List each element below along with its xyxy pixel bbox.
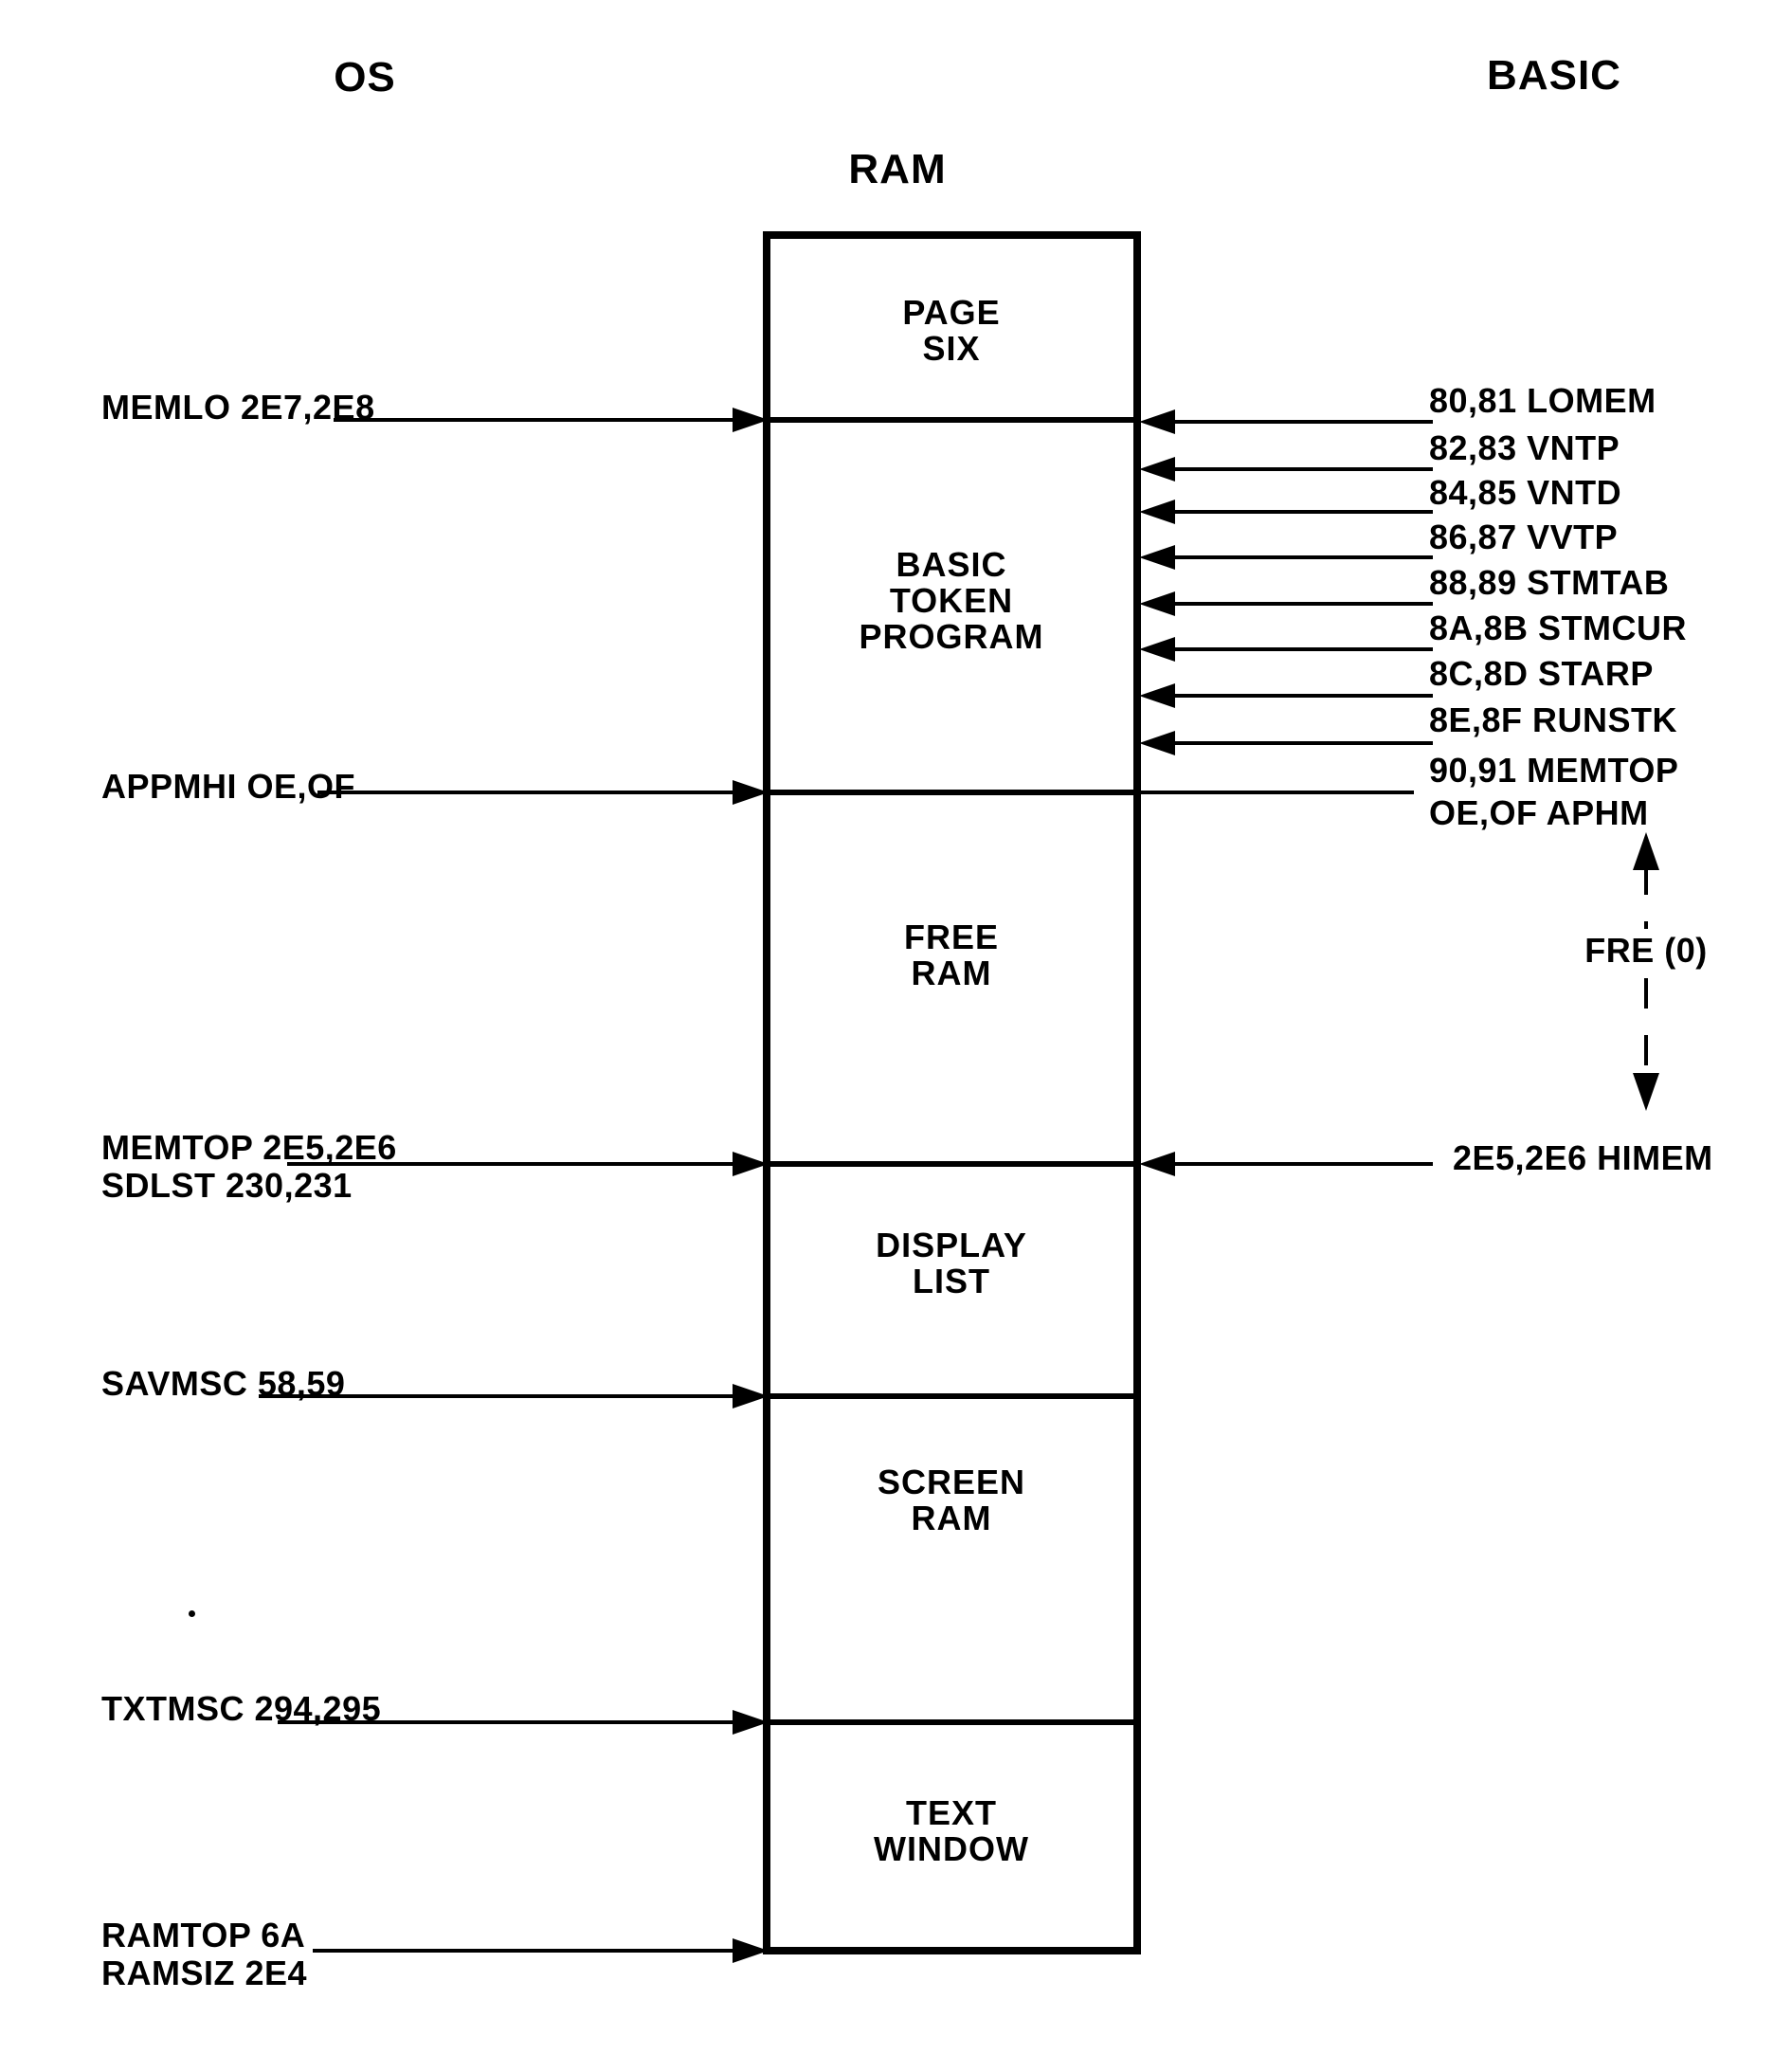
basic-pointer-label-vntd: 84,85 VNTD [1429, 474, 1621, 512]
pointer-line [1166, 510, 1433, 514]
pointer-line [1166, 1162, 1433, 1166]
os-column-header: OS [334, 54, 396, 101]
basic-pointer-label-aphm: OE,OF APHM [1429, 794, 1649, 832]
basic-pointer-label-runstk: 8E,8F RUNSTK [1429, 701, 1677, 739]
pointer-line [1137, 791, 1414, 794]
basic-pointer-label-lomem: 80,81 LOMEM [1429, 382, 1656, 420]
section-label-basic-token-program: BASIC TOKEN PROGRAM [860, 547, 1044, 655]
basic-pointer-label-vntp: 82,83 VNTP [1429, 429, 1620, 467]
arrowhead-right-icon [733, 1710, 769, 1735]
basic-column-header: BASIC [1487, 52, 1621, 100]
os-pointer-label-ramtop: RAMTOP 6A RAMSIZ 2E4 [101, 1917, 307, 1992]
section-divider-savmsc [767, 1393, 1137, 1399]
ram-box [763, 231, 1141, 1954]
pointer-line [313, 1949, 753, 1953]
pointer-line [1166, 467, 1433, 471]
memory-map-diagram: OS RAM BASIC PAGE SIX BASIC TOKEN PROGRA… [0, 0, 1792, 2054]
basic-pointer-label-starp: 8C,8D STARP [1429, 655, 1654, 693]
arrowhead-right-icon [733, 408, 769, 432]
section-divider-memlo [767, 417, 1137, 423]
section-divider-txtmsc [767, 1719, 1137, 1725]
os-pointer-label-memtop: MEMTOP 2E5,2E6 SDLST 230,231 [101, 1129, 397, 1205]
pointer-line [334, 418, 753, 422]
pointer-line [1166, 602, 1433, 606]
arrowhead-right-icon [733, 1938, 769, 1963]
pointer-line [1166, 420, 1433, 424]
pointer-line [1166, 741, 1433, 745]
arrowhead-up-icon [1633, 832, 1659, 870]
basic-pointer-label-stmtab: 88,89 STMTAB [1429, 564, 1669, 602]
basic-pointer-label-stmcur: 8A,8B STMCUR [1429, 609, 1687, 647]
section-label-screen-ram: SCREEN RAM [878, 1464, 1025, 1536]
section-label-free-ram: FREE RAM [904, 919, 999, 991]
pointer-line [317, 791, 753, 794]
pointer-line [259, 1394, 753, 1398]
basic-pointer-label-memtop: 90,91 MEMTOP [1429, 752, 1678, 790]
basic-pointer-label-vvtp: 86,87 VVTP [1429, 518, 1618, 556]
pointer-line [1166, 647, 1433, 651]
section-label-text-window: TEXT WINDOW [874, 1795, 1029, 1867]
arrowhead-right-icon [733, 780, 769, 805]
section-label-display-list: DISPLAY LIST [876, 1227, 1027, 1300]
pointer-line [278, 1720, 753, 1724]
free-space-label: FRE (0) [1577, 929, 1715, 972]
os-pointer-label-appmhi: APPMHI OE,OF [101, 768, 355, 806]
ram-box-title: RAM [848, 146, 946, 193]
section-divider-appmhi [767, 790, 1137, 795]
pointer-line [287, 1162, 753, 1166]
stray-dot [189, 1610, 195, 1617]
pointer-line [1166, 694, 1433, 698]
arrowhead-right-icon [733, 1152, 769, 1176]
basic-pointer-label-himem: 2E5,2E6 HIMEM [1453, 1139, 1713, 1177]
section-label-page-six: PAGE SIX [902, 295, 1000, 367]
section-divider-memtop [767, 1161, 1137, 1167]
arrowhead-right-icon [733, 1384, 769, 1409]
arrowhead-down-icon [1633, 1073, 1659, 1111]
pointer-line [1166, 555, 1433, 559]
